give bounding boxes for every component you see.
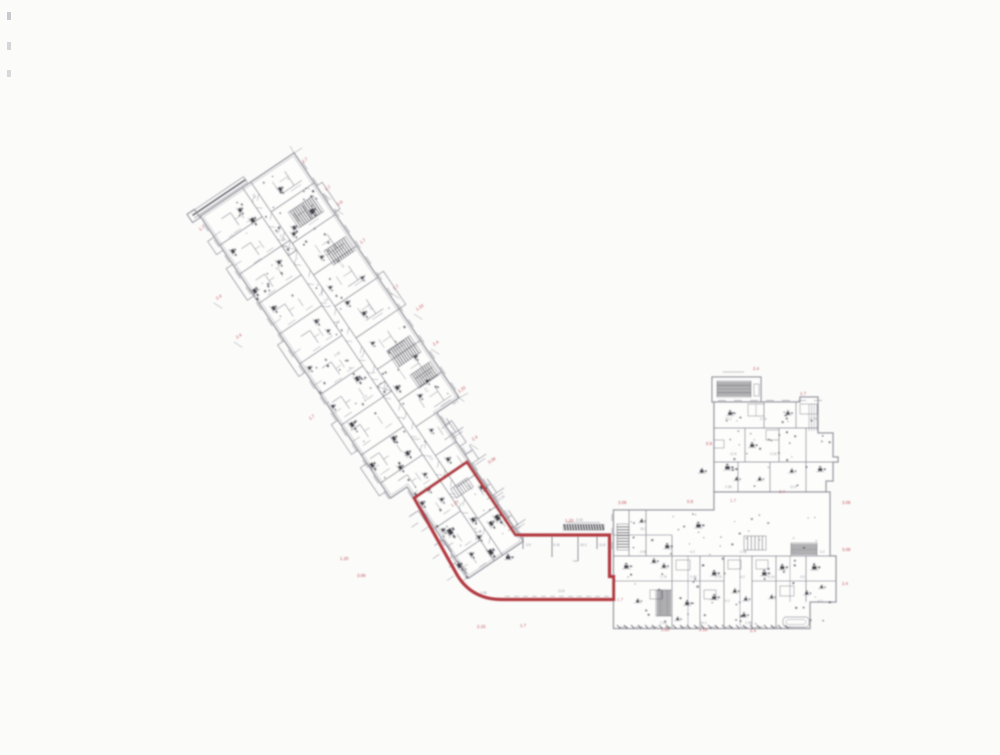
svg-text:3.08: 3.08: [842, 500, 851, 505]
svg-text:1.75: 1.75: [660, 575, 667, 579]
svg-text:0.9: 0.9: [687, 499, 694, 504]
svg-text:16.2: 16.2: [580, 543, 587, 547]
svg-text:1.20: 1.20: [661, 627, 670, 632]
svg-text:3.5: 3.5: [800, 575, 805, 579]
svg-text:3.16: 3.16: [553, 543, 560, 547]
svg-text:11.8: 11.8: [790, 485, 796, 489]
svg-text:2.98: 2.98: [640, 550, 647, 554]
svg-text:3.5: 3.5: [526, 543, 531, 547]
svg-text:11.8: 11.8: [730, 452, 736, 456]
svg-text:11.8: 11.8: [599, 543, 605, 547]
svg-text:0.9: 0.9: [706, 441, 713, 446]
svg-text:2.98: 2.98: [745, 621, 752, 625]
svg-text:16.2: 16.2: [640, 527, 647, 531]
svg-text:1.7: 1.7: [617, 597, 624, 602]
svg-text:2.15: 2.15: [699, 627, 708, 632]
svg-text:2.4: 2.4: [750, 628, 757, 633]
svg-text:2.98: 2.98: [740, 550, 747, 554]
svg-text:2.4: 2.4: [753, 366, 760, 371]
svg-text:2.98: 2.98: [725, 485, 732, 489]
svg-text:3.16: 3.16: [760, 417, 767, 421]
svg-text:3.08: 3.08: [842, 547, 851, 552]
svg-text:3.16: 3.16: [768, 575, 775, 579]
svg-text:3.08: 3.08: [357, 573, 366, 578]
svg-text:4.2: 4.2: [740, 575, 745, 579]
svg-text:2.15: 2.15: [477, 624, 486, 629]
svg-text:1.7: 1.7: [800, 391, 807, 396]
svg-text:3.08: 3.08: [618, 500, 627, 505]
svg-text:1.20: 1.20: [340, 556, 349, 561]
svg-text:1.7: 1.7: [520, 623, 527, 628]
svg-text:2.4: 2.4: [842, 581, 849, 586]
svg-text:4.2: 4.2: [790, 550, 795, 554]
svg-text:3.16: 3.16: [770, 452, 777, 456]
svg-text:4.2: 4.2: [725, 599, 730, 603]
svg-text:4.2: 4.2: [818, 599, 823, 603]
svg-text:3.16: 3.16: [576, 518, 583, 522]
svg-text:1.75: 1.75: [715, 575, 722, 579]
svg-text:1.20: 1.20: [565, 518, 574, 523]
svg-text:11.8: 11.8: [558, 589, 564, 593]
svg-text:4.2: 4.2: [820, 550, 825, 554]
svg-text:1.7: 1.7: [730, 498, 737, 503]
svg-text:16.2: 16.2: [700, 621, 707, 625]
svg-text:2.4: 2.4: [779, 489, 786, 494]
svg-text:4.2: 4.2: [690, 550, 695, 554]
